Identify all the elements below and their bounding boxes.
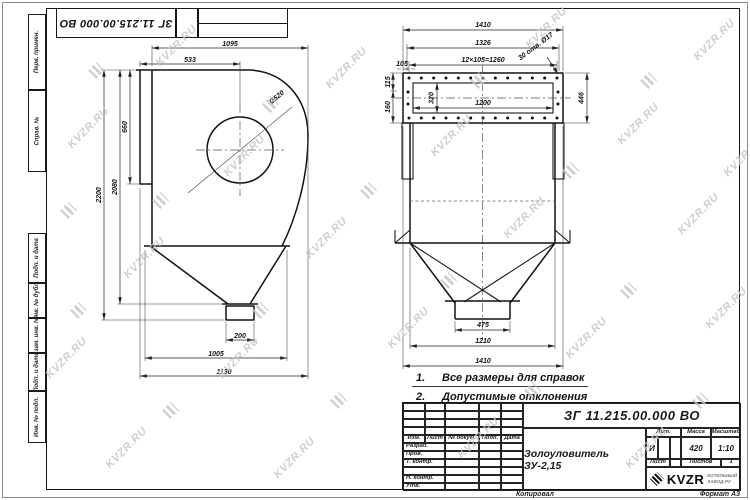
title-block: Изм. Лист № докум. Подп. Дата Разраб. Пр… bbox=[402, 402, 740, 490]
tb-header-data: Дата bbox=[501, 435, 523, 443]
margin-label: Инв. № подл. bbox=[34, 397, 40, 437]
top-empty-cell bbox=[176, 8, 198, 38]
margin-cell-sprav-no: Справ. № bbox=[28, 90, 46, 172]
tb-value-listov: 1 bbox=[721, 459, 741, 467]
note-number: 1. bbox=[412, 371, 442, 385]
view-front: 1410 1326 12×105=1260 105 30 отв. Ø17 12… bbox=[385, 8, 620, 393]
margin-label: Справ. № bbox=[34, 117, 40, 146]
tb-company-cell: KVZR КОТЕЛЬНЫЙ ЗАВОД.РУ bbox=[646, 467, 741, 491]
view-side-profile: 1095 533 660 2200 2080 Ø520 200 1005 113… bbox=[90, 38, 345, 388]
tb-header-lit: Лит. bbox=[646, 428, 681, 437]
tb-row-nkontr: Н. контр. bbox=[403, 475, 445, 483]
dim-1210: 1210 bbox=[475, 338, 491, 345]
side-dimensions: 1095 533 660 2200 2080 Ø520 200 1005 113… bbox=[96, 41, 308, 379]
dim-2080: 2080 bbox=[112, 179, 119, 196]
dim-160: 160 bbox=[385, 101, 392, 113]
tb-row-prov: Пров. bbox=[403, 451, 445, 459]
tb-designation: ЗГ 11.215.00.000 ВО bbox=[523, 403, 741, 428]
tb-header-masshtab: Масштаб bbox=[711, 428, 741, 437]
dim-1410-bottom: 1410 bbox=[475, 358, 491, 365]
tb-row-utv: Утв. bbox=[403, 483, 445, 491]
dim-1005: 1005 bbox=[208, 351, 224, 358]
dim-holes-note: 30 отв. Ø17 bbox=[517, 31, 555, 62]
margin-label: Подп. и дата bbox=[34, 238, 40, 278]
note-1: 1. Все размеры для справок bbox=[412, 371, 588, 387]
dim-12x105: 12×105=1260 bbox=[461, 57, 504, 64]
margin-label: Инв. № дубл. bbox=[34, 281, 40, 321]
dim-1200: 1200 bbox=[475, 100, 491, 107]
tb-header-massa: Масса bbox=[681, 428, 711, 437]
top-designation-box: ЗГ 11.215.00.000 ВО bbox=[56, 8, 176, 38]
top-table-divider bbox=[199, 23, 287, 24]
dim-200: 200 bbox=[233, 333, 246, 340]
kvzr-sub-line2: ЗАВОД.РУ bbox=[707, 479, 737, 485]
tb-row-tkontr: Т. контр. bbox=[403, 459, 445, 467]
dim-2200: 2200 bbox=[96, 187, 103, 204]
margin-cell-inv-dubl: Инв. № дубл. bbox=[28, 283, 46, 318]
margin-cell-podp-data-2: Подп. и дата bbox=[28, 353, 46, 391]
tb-value-scale: 1:10 bbox=[711, 437, 741, 459]
dim-1130: 1130 bbox=[216, 369, 231, 376]
tb-header-listov: Листов bbox=[681, 459, 721, 467]
dim-1095: 1095 bbox=[222, 41, 238, 48]
dim-outlet-dia: Ø520 bbox=[268, 90, 286, 106]
copied-label: Копировал bbox=[495, 491, 575, 498]
dim-533: 533 bbox=[184, 57, 196, 64]
dim-105: 105 bbox=[396, 61, 408, 68]
tb-value-lit: И bbox=[646, 437, 658, 459]
kvzr-logo-text: KVZR bbox=[667, 472, 704, 487]
dim-446: 446 bbox=[579, 92, 586, 105]
dim-1410-top: 1410 bbox=[475, 22, 491, 29]
kvzr-logo-subtext: КОТЕЛЬНЫЙ ЗАВОД.РУ bbox=[707, 473, 737, 485]
margin-label: Взам. инв. № bbox=[34, 316, 40, 356]
tb-header-izm: Изм. bbox=[403, 435, 425, 443]
tb-header-list2: Лист bbox=[646, 459, 670, 467]
kvzr-logo-icon bbox=[650, 472, 664, 486]
margin-cell-vzam-inv: Взам. инв. № bbox=[28, 318, 46, 353]
dim-1326: 1326 bbox=[475, 40, 491, 47]
dim-320: 320 bbox=[429, 92, 436, 104]
margin-cell-podp-data-1: Подп. и дата bbox=[28, 233, 46, 283]
margin-cell-perv-primen: Перв. примен. bbox=[28, 14, 46, 90]
top-table-box bbox=[198, 8, 288, 38]
drawing-sheet: KVZR.RUKVZR.RUKVZR.RUKVZR.RUKVZR.RUKVZR.… bbox=[0, 0, 750, 500]
margin-cell-inv-podl: Инв. № подл. bbox=[28, 391, 46, 443]
tb-row-razrab: Разраб. bbox=[403, 443, 445, 451]
dim-115: 115 bbox=[385, 76, 392, 87]
tb-header-doc: № докум. bbox=[445, 435, 479, 443]
margin-label: Перв. примен. bbox=[34, 31, 40, 73]
dim-475: 475 bbox=[476, 322, 489, 329]
top-designation-text: ЗГ 11.215.00.000 ВО bbox=[57, 9, 175, 37]
tb-header-podp: Подп. bbox=[479, 435, 501, 443]
tb-header-list: Лист bbox=[425, 435, 445, 443]
side-outline bbox=[136, 70, 308, 320]
format-label: Формат А3 bbox=[688, 491, 740, 498]
tb-value-massa: 420 bbox=[681, 437, 711, 459]
tb-name: Золоуловитель ЗУ-2,15 bbox=[523, 428, 646, 491]
note-text: Все размеры для справок bbox=[442, 371, 584, 385]
side-tab-left bbox=[402, 123, 413, 179]
front-dimensions: 1410 1326 12×105=1260 105 30 отв. Ø17 12… bbox=[385, 22, 590, 369]
margin-label: Подп. и дата bbox=[34, 352, 40, 392]
dim-660: 660 bbox=[122, 121, 129, 133]
